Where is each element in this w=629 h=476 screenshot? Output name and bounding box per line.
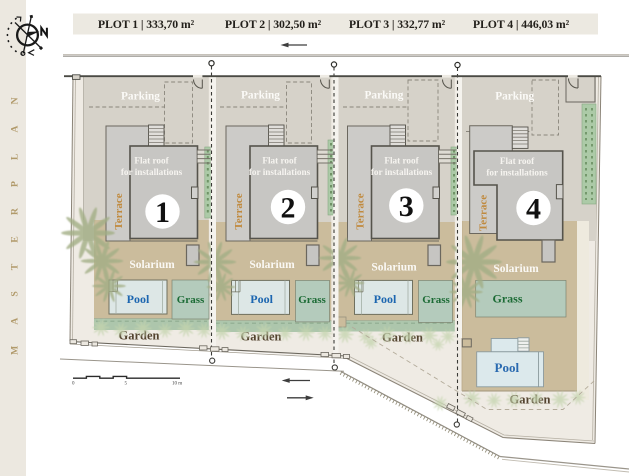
svg-text:Flat roof: Flat roof <box>262 156 297 166</box>
svg-text:PLOT 4 | 446,03 m²: PLOT 4 | 446,03 m² <box>473 17 570 31</box>
svg-text:1: 1 <box>155 196 170 229</box>
svg-text:Solarium: Solarium <box>371 262 417 274</box>
svg-text:MASTERPLAN: MASTERPLAN <box>10 76 21 355</box>
svg-text:2: 2 <box>281 192 296 225</box>
svg-text:Parking: Parking <box>365 90 404 102</box>
svg-text:PLOT 2 | 302,50 m²: PLOT 2 | 302,50 m² <box>225 17 322 31</box>
svg-text:Flat roof: Flat roof <box>500 156 535 166</box>
svg-text:Parking: Parking <box>121 91 160 103</box>
svg-text:Pool: Pool <box>127 292 150 306</box>
svg-text:for installations: for installations <box>371 167 433 177</box>
svg-text:10 m: 10 m <box>172 381 182 386</box>
svg-text:Solarium: Solarium <box>493 263 539 275</box>
svg-text:PLOT 1 | 333,70 m²: PLOT 1 | 333,70 m² <box>98 17 195 31</box>
svg-text:Grass: Grass <box>493 292 523 306</box>
svg-text:Pool: Pool <box>495 360 520 375</box>
svg-text:4: 4 <box>526 193 541 226</box>
svg-text:for installations: for installations <box>486 168 548 178</box>
svg-text:Terrace: Terrace <box>478 195 490 231</box>
svg-text:Grass: Grass <box>422 294 450 306</box>
svg-text:for installations: for installations <box>121 167 183 177</box>
svg-text:Flat roof: Flat roof <box>134 156 169 166</box>
svg-text:Flat roof: Flat roof <box>384 156 419 166</box>
svg-text:Pool: Pool <box>374 292 397 306</box>
svg-text:Grass: Grass <box>298 294 326 306</box>
svg-text:PLOT 3 | 332,77 m²: PLOT 3 | 332,77 m² <box>349 17 446 31</box>
svg-text:3: 3 <box>399 190 414 223</box>
svg-text:Grass: Grass <box>177 294 205 306</box>
svg-text:Parking: Parking <box>241 90 280 102</box>
svg-text:Solarium: Solarium <box>129 259 175 271</box>
svg-text:Solarium: Solarium <box>249 259 295 271</box>
svg-text:for installations: for installations <box>249 167 311 177</box>
svg-text:Pool: Pool <box>250 292 273 306</box>
svg-text:Parking: Parking <box>495 91 534 103</box>
